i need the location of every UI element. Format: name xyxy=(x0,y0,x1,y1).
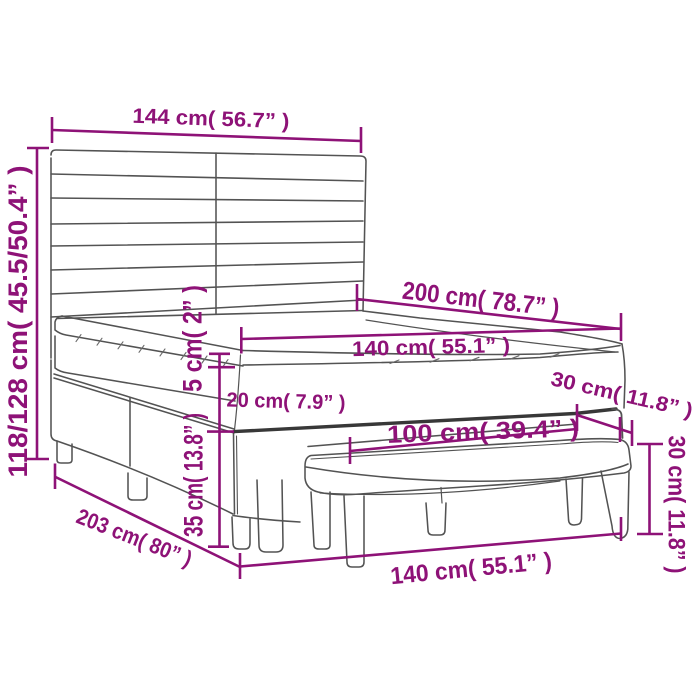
svg-text:140 cm( 55.1” ): 140 cm( 55.1” ) xyxy=(352,334,511,361)
svg-text:35 cm( 13.8” ): 35 cm( 13.8” ) xyxy=(179,413,209,537)
svg-text:30 cm( 11.8” ): 30 cm( 11.8” ) xyxy=(663,436,690,574)
svg-text:20 cm( 7.9” ): 20 cm( 7.9” ) xyxy=(226,388,346,414)
svg-text:118/128 cm( 45.5/50.4” ): 118/128 cm( 45.5/50.4” ) xyxy=(3,166,33,478)
svg-text:5 cm( 2” ): 5 cm( 2” ) xyxy=(178,285,208,392)
